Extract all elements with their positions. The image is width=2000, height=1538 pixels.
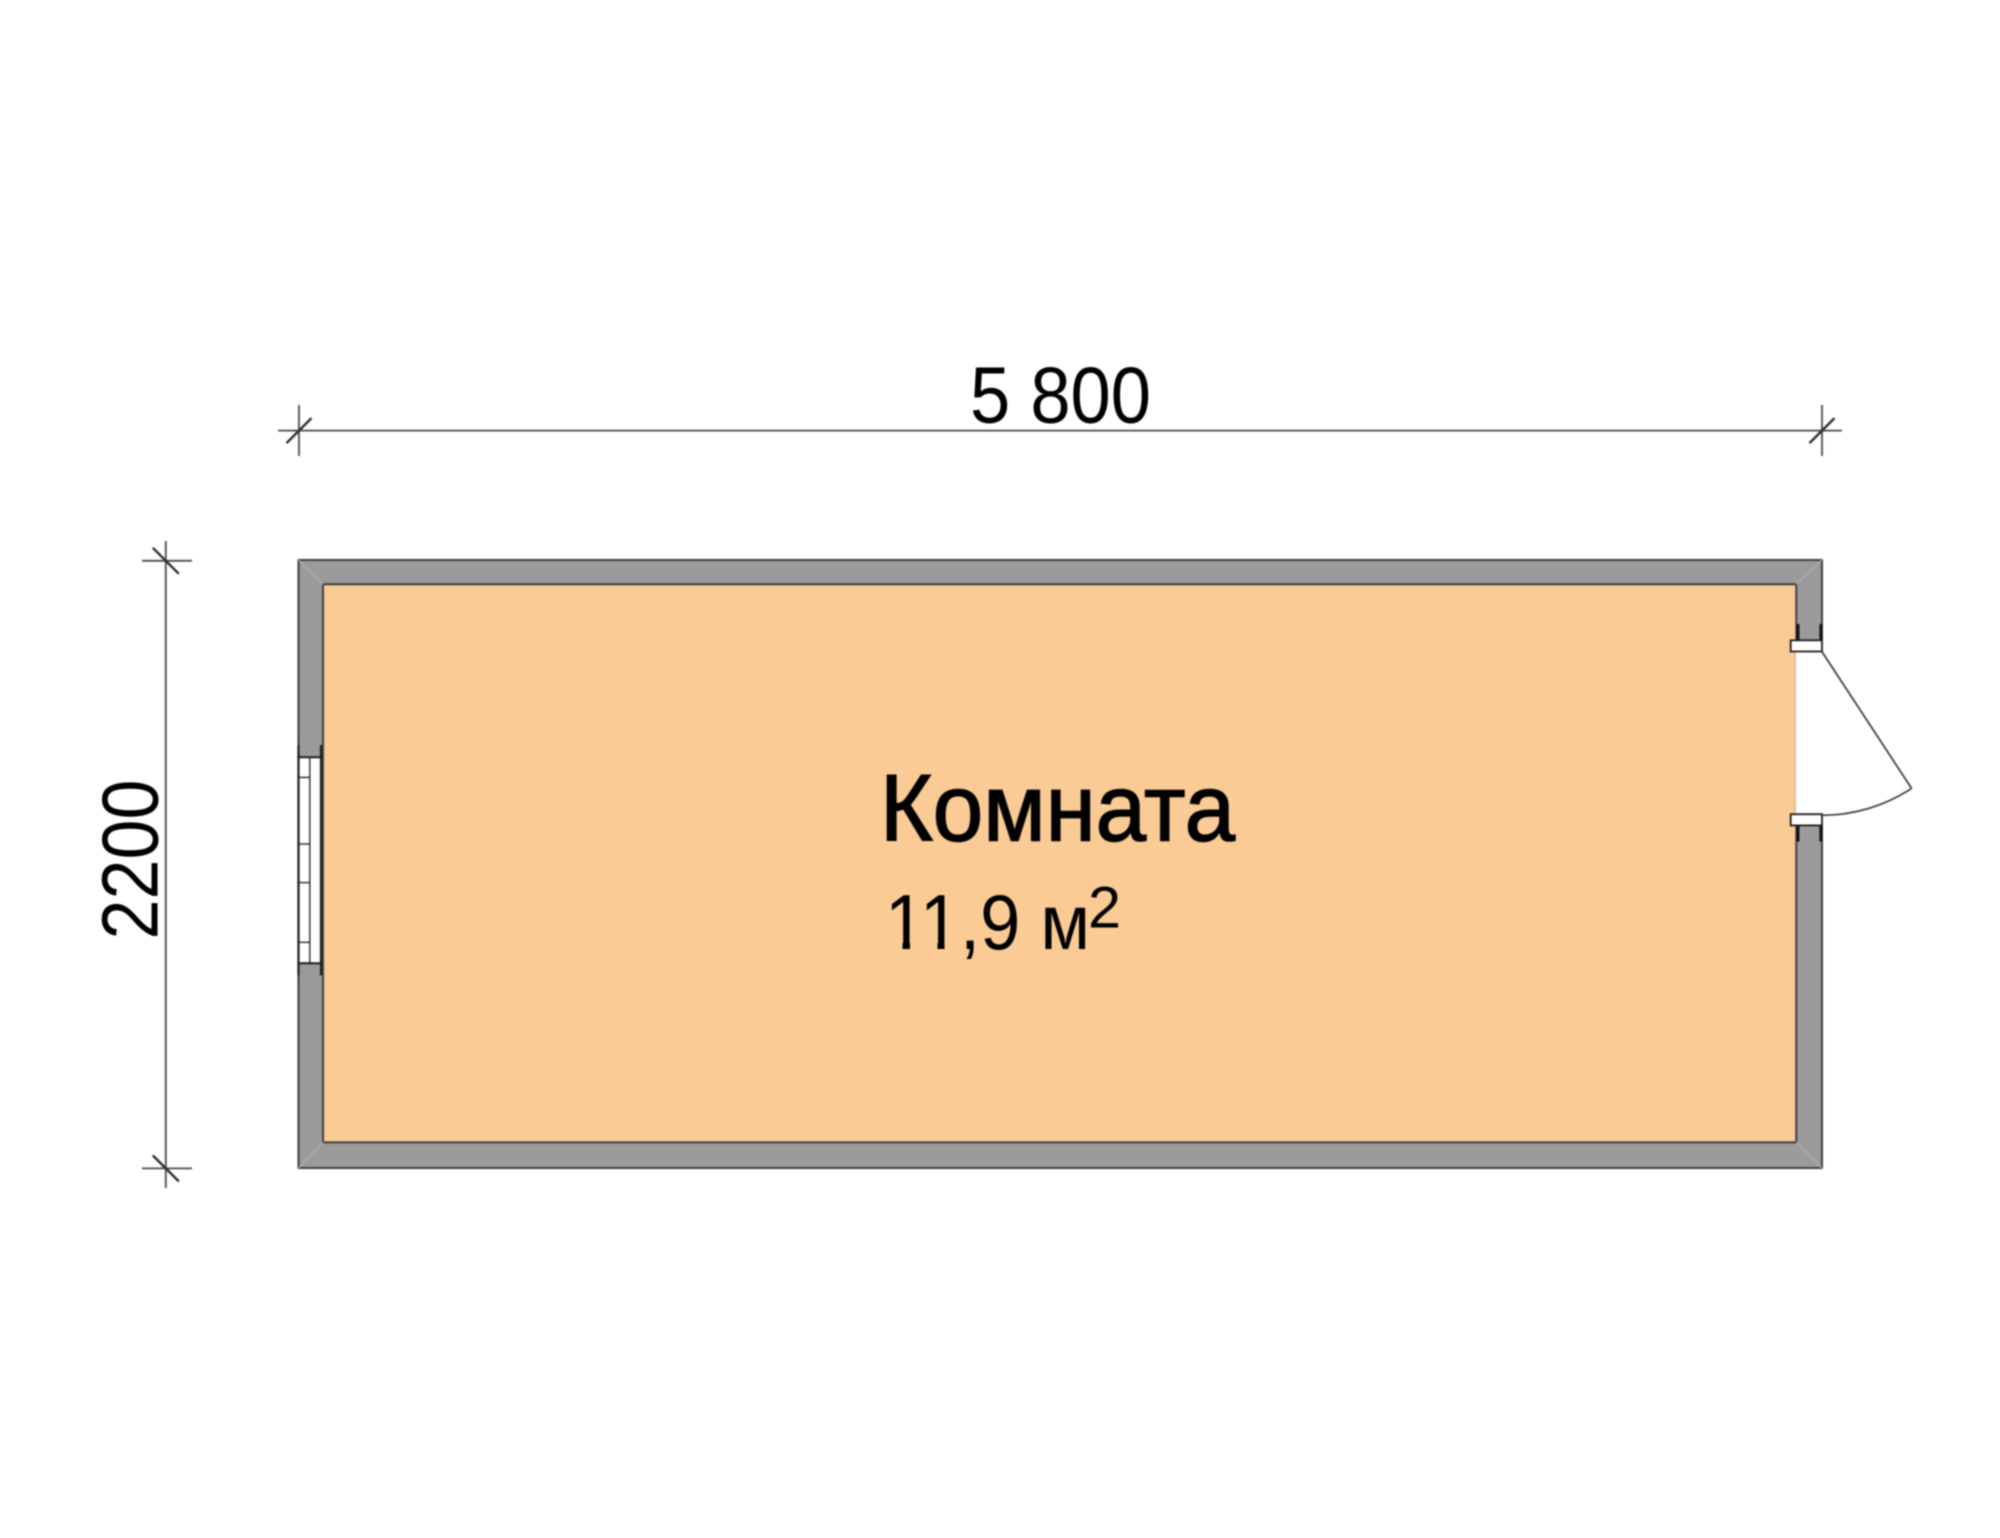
svg-text:2200: 2200 [86,780,175,940]
svg-text:5 800: 5 800 [970,350,1151,439]
svg-text:11,9 м: 11,9 м [885,878,1090,966]
svg-text:Комната: Комната [880,755,1235,861]
svg-text:2: 2 [1088,875,1121,940]
